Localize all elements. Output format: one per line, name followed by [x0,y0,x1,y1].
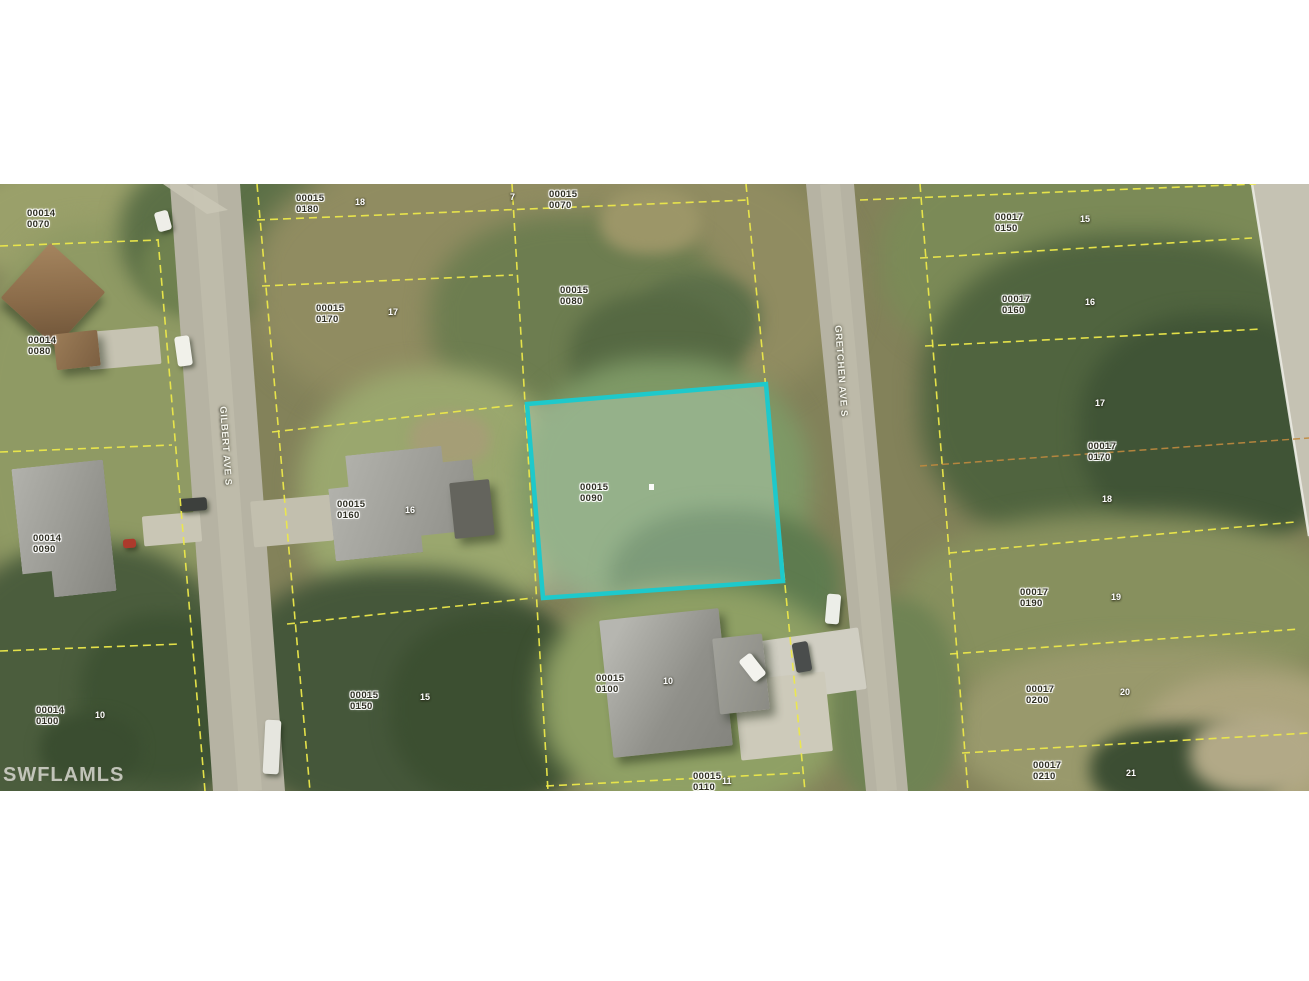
lot-number-16: 16 [405,505,415,515]
lot-number-18: 18 [355,197,365,207]
lot-number-17: 17 [388,307,398,317]
lot-number-20: 20 [1120,687,1130,697]
parcel-label-00015-0080: 000150080 [560,286,588,307]
parcel-label-00017-0200: 000170200 [1026,685,1054,706]
parcel-label-00015-0110: 000150110 [693,772,721,791]
parcel-label-00015-0090: 000150090 [580,483,608,504]
parcel-label-00015-0150: 000150150 [350,691,378,712]
parcel-label-00017-0190: 000170190 [1020,588,1048,609]
lot-number-10: 10 [95,710,105,720]
lot-number-10: 10 [663,676,673,686]
parcel-label-00017-0160: 000170160 [1002,295,1030,316]
watermark: SWFLAMLS [3,764,124,787]
parcel-labels-layer: 0001400700001400800001400900001401000001… [0,184,1309,791]
parcel-label-00017-0150: 000170150 [995,213,1023,234]
aerial-parcel-map: 0001400700001400800001400900001401000001… [0,184,1309,791]
parcel-label-00014-0080: 000140080 [28,336,56,357]
lot-number-7: 7 [510,192,515,202]
lot-number-21: 21 [1126,768,1136,778]
parcel-label-00017-0170: 000170170 [1088,442,1116,463]
lot-number-18: 18 [1102,494,1112,504]
parcel-label-00015-0170: 000150170 [316,304,344,325]
lot-number-15: 15 [420,692,430,702]
lot-number-17: 17 [1095,398,1105,408]
parcel-label-00015-0180: 000150180 [296,194,324,215]
parcel-label-00014-0070: 000140070 [27,209,55,230]
parcel-label-00017-0210: 000170210 [1033,761,1061,782]
top-margin [0,0,1309,184]
lot-number-16: 16 [1085,297,1095,307]
parcel-label-00015-0160: 000150160 [337,500,365,521]
lot-number-15: 15 [1080,214,1090,224]
bottom-margin [0,791,1309,981]
mls-aerial-listing-photo: 0001400700001400800001400900001401000001… [0,0,1309,981]
parcel-label-00014-0100: 000140100 [36,706,64,727]
lot-number-19: 19 [1111,592,1121,602]
parcel-label-00014-0090: 000140090 [33,534,61,555]
parcel-label-00015-0100: 000150100 [596,674,624,695]
parcel-label-00015-0070: 000150070 [549,190,577,211]
lot-number-11: 11 [722,776,732,786]
